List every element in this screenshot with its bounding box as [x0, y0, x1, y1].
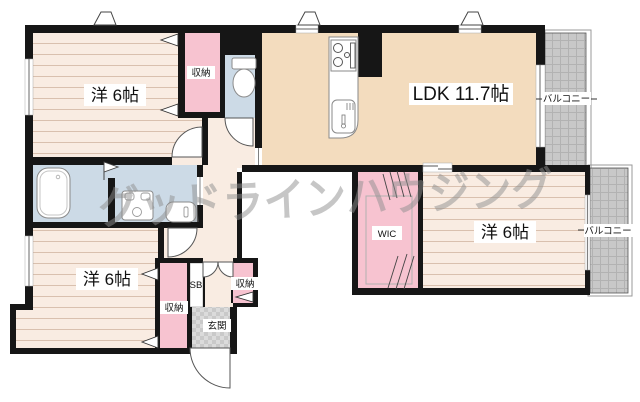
bedroom-bottom-left-label: 洋 6帖	[83, 270, 131, 289]
bedroom-top-left-label: 洋 6帖	[91, 86, 139, 105]
vent-icon	[94, 12, 116, 25]
storage-top-label: 収納	[191, 67, 210, 79]
shoe-box-label: SB	[190, 280, 203, 291]
kitchen-counter	[329, 37, 358, 138]
balcony-top-label: バルコニー	[543, 94, 590, 105]
bedroom-bottom-left-extension	[16, 310, 33, 348]
window-ldk-top-1	[296, 25, 318, 33]
toilet-icon	[232, 58, 256, 97]
vent-icon	[461, 12, 483, 25]
entrance-label: 玄関	[207, 320, 226, 332]
bathtub-icon	[37, 168, 70, 218]
window-left-top	[25, 59, 33, 115]
storage-entrance-label: 収納	[235, 278, 254, 290]
stove-icon	[331, 40, 356, 71]
vent-icon	[298, 12, 320, 25]
wic-label: WIC	[378, 229, 397, 240]
window-ldk-top-2	[459, 25, 481, 33]
door-gap-ldk	[255, 148, 262, 165]
window-left-bottom	[25, 236, 33, 286]
ldk-label: LDK 11.7帖	[413, 83, 510, 105]
floorplan-drawing: グッドラインハウジング 洋 6帖 LDK 11.7帖 洋 6帖 洋 6帖 収納 …	[0, 0, 640, 402]
vent-icons	[94, 12, 483, 25]
window-ldk-right	[536, 65, 545, 147]
door-arc-entrance	[190, 348, 230, 388]
storage-bottom-label: 収納	[164, 302, 183, 314]
floorplan-canvas: グッドラインハウジング 洋 6帖 LDK 11.7帖 洋 6帖 洋 6帖 収納 …	[0, 0, 640, 402]
kitchen-sink-icon	[332, 100, 355, 133]
balcony-bottom-label: バルコニー	[584, 226, 631, 237]
bedroom-right-label: 洋 6帖	[481, 223, 529, 242]
